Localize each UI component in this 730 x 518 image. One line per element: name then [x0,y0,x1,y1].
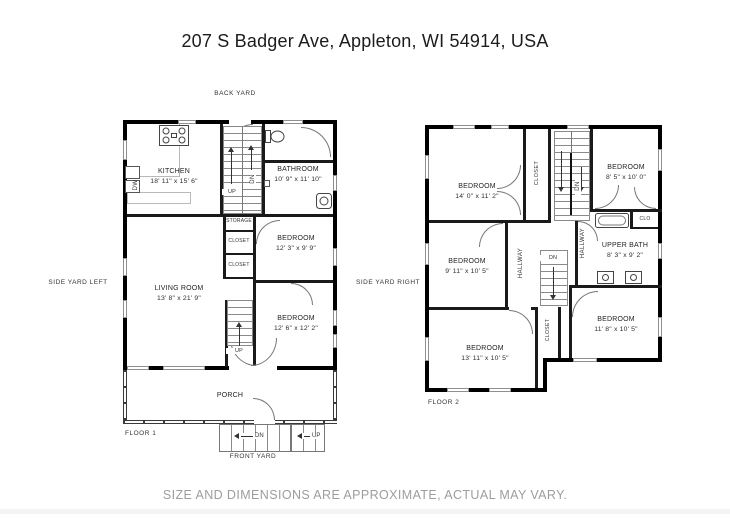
window [658,243,662,259]
floor2-label: FLOOR 2 [428,399,459,406]
window [658,149,662,171]
floor2-plan: DN CLOSET DN HALLWAY HALLWAY CLOSET CLO [425,125,662,395]
room-name: UPPER BATH [593,241,657,251]
up-arrow-icon [228,147,234,152]
wall [429,220,551,223]
wall [523,129,526,223]
wall [223,253,255,255]
window [333,334,337,348]
closet-label: CLOSET [545,307,551,353]
sink-icon [316,193,332,209]
room-name: BEDROOM [435,182,519,192]
window [447,388,469,392]
wall [569,285,662,288]
wall [548,129,551,223]
floor1-label: FLOOR 1 [125,430,156,437]
room-bedroom: BEDROOM 14' 0" x 11' 2" [435,182,519,202]
front-yard-label: FRONT YARD [208,453,298,460]
wall [590,129,593,212]
wall [127,214,333,217]
stairs-dn-label: DN [575,177,581,195]
room-upper-bath: UPPER BATH 8' 3" x 9' 2" [593,241,657,261]
window [163,366,205,370]
steps-up: UP [295,433,322,439]
wall [569,288,572,358]
clo-label: CLO [632,216,658,222]
room-dims: 8' 5" x 10' 0" [595,173,657,183]
bottom-band [0,509,730,514]
wall [425,388,547,392]
closet-label: CLOSET [534,150,540,196]
stair-divider [242,126,243,214]
side-yard-right-label: SIDE YARD RIGHT [348,279,428,286]
room-name: BEDROOM [573,315,659,325]
left-arrow-icon [304,436,310,437]
floorplan-page: 207 S Badger Ave, Appleton, WI 54914, US… [0,0,730,518]
down-arrow-icon [558,187,564,192]
door-arc-icon [509,310,533,334]
window [453,125,475,129]
steps-dn: DN [232,433,266,439]
room-name: KITCHEN [133,167,215,177]
up-arrow-icon [236,322,242,327]
room-bedroom: BEDROOM 13' 11" x 10' 5" [441,344,529,364]
room-name: PORCH [217,392,243,399]
wall [543,358,547,392]
window [567,125,589,129]
closet-label: CLOSET [223,262,255,268]
staircase [554,131,590,221]
room-name: BEDROOM [257,234,335,244]
window [489,388,511,392]
door-arc-icon [595,185,619,209]
steps-up-label: UP [312,433,320,439]
toilet-icon [265,129,286,144]
room-kitchen: KITCHEN 18' 11" x 15' 6" [133,167,215,187]
room-bathroom: BATHROOM 10' 9" x 11' 10" [262,165,334,185]
stairs-dn-label: DN [250,170,256,188]
room-bedroom: BEDROOM 12' 6" x 12' 2" [257,314,335,334]
room-dims: 18' 11" x 15' 6" [133,177,215,187]
down-arrow-icon [553,267,554,297]
hallway-label: HALLWAY [518,233,524,293]
porch-label: PORCH [123,391,337,401]
door-arc-icon [253,398,275,420]
door-arc-icon [572,291,598,317]
room-name: BEDROOM [441,344,529,354]
disclaimer-text: SIZE AND DIMENSIONS ARE APPROXIMATE, ACT… [0,488,730,502]
wall [543,358,662,362]
window [123,258,127,276]
bathtub-icon [595,213,629,228]
room-dims: 8' 3" x 9' 2" [593,251,657,261]
room-dims: 11' 8" x 10' 5" [573,325,659,335]
room-dims: 12' 6" x 12' 2" [257,324,335,334]
up-arrow-icon [239,326,240,346]
down-arrow-icon [550,295,556,300]
room-bedroom: BEDROOM 8' 5" x 10' 0" [595,163,657,183]
room-dims: 9' 11" x 10' 5" [429,267,505,277]
window [127,366,149,370]
room-dims: 13' 11" x 10' 5" [441,354,529,364]
room-name: BEDROOM [595,163,657,173]
door-arc-icon [251,338,277,366]
closet-label: CLOSET [223,238,255,244]
window [425,337,429,361]
room-dims: 14' 0" x 11' 2" [435,192,519,202]
window [283,120,303,124]
wall [630,227,658,229]
door-arc-icon [634,187,656,209]
down-arrow-icon [581,167,582,189]
door-gap [229,120,251,124]
window [573,358,597,362]
door-gap [229,366,277,370]
door-arc-icon [301,127,331,157]
room-name: BATHROOM [262,165,334,175]
room-bedroom: BEDROOM 12' 3" x 9' 9" [257,234,335,254]
stove-icon [159,125,189,146]
window [178,120,196,124]
door-arc-icon [291,283,313,305]
room-dims: 10' 9" x 11' 10" [262,175,334,185]
up-arrow-icon [231,152,232,184]
room-living: LIVING ROOM 13' 8" x 21' 9" [133,284,225,304]
wall [558,307,561,358]
back-yard-label: BACK YARD [185,90,285,97]
wall [505,223,508,310]
down-arrow-icon [561,151,562,189]
room-name: LIVING ROOM [133,284,225,294]
stairs-dn-label: DN [539,255,567,261]
room-name: BEDROOM [429,257,505,267]
room-bedroom: BEDROOM 9' 11" x 10' 5" [429,257,505,277]
left-arrow-icon [234,433,239,439]
side-yard-left-label: SIDE YARD LEFT [38,279,118,286]
window [425,155,429,179]
left-arrow-icon [297,433,302,439]
stairs-up-label: UP [226,348,252,354]
window [123,300,127,318]
wall [223,217,226,279]
steps-divider [290,425,292,451]
window [491,125,509,129]
up-arrow-icon [248,145,254,150]
room-name: BEDROOM [257,314,335,324]
bath-sink-icon [625,271,642,284]
door-arc-icon [479,223,503,247]
page-title: 207 S Badger Ave, Appleton, WI 54914, US… [0,31,730,52]
steps-dn-label: DN [255,433,264,439]
wall [223,277,255,279]
room-dims: 12' 3" x 9' 9" [257,244,335,254]
wall [262,160,333,163]
stairs-up-label: UP [222,189,242,195]
room-dims: 13' 8" x 21' 9" [133,294,225,304]
wall [223,230,255,232]
left-arrow-icon [241,436,253,437]
bath-sink-icon [597,271,614,284]
room-bedroom: BEDROOM 11' 8" x 10' 5" [573,315,659,335]
floor1-plan: DW UP DN STORAGE CLOSET CLOSET UP [123,120,337,426]
stair-rail [570,153,572,215]
storage-label: STORAGE [223,218,255,224]
wall [535,307,538,388]
